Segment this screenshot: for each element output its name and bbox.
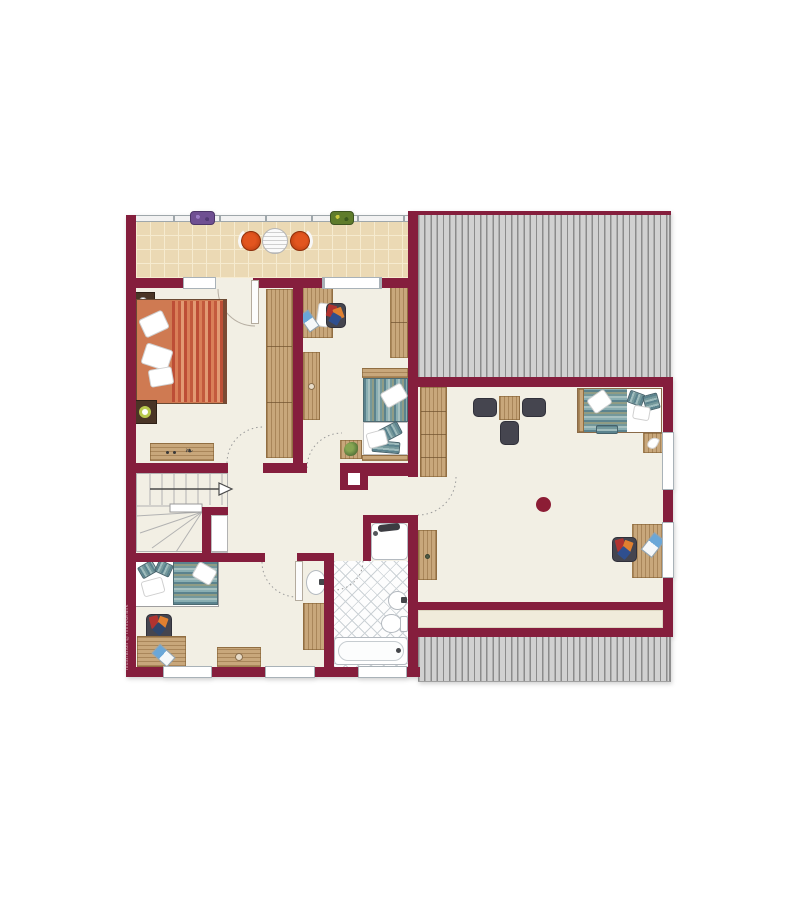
faucet-icon [401,597,407,603]
cushion [154,559,174,578]
toilet [381,614,402,633]
wall [263,463,307,473]
duvet [172,301,223,402]
flower-box-purple-icon [190,211,215,225]
dining-table [499,396,520,420]
wall [418,628,673,637]
chimney-core [348,473,360,485]
door-gap-floor [408,477,418,515]
single-bed-footboard [362,455,408,461]
bed [135,559,219,607]
wall [293,278,303,473]
window [183,277,216,289]
wardrobe-divider [391,322,407,323]
wardrobe-divider [267,402,292,403]
balcony-railing [126,215,412,222]
pillow [140,576,165,597]
wall [297,553,334,561]
knob-icon [235,653,243,661]
pillow [148,366,175,388]
dresser: ❧ [150,443,214,461]
wall [324,553,334,667]
wall [126,278,183,288]
roof-edge-line [408,211,671,215]
shelf-divider [421,411,446,412]
flower-box-green-icon [330,211,354,225]
wall [202,507,228,515]
single-bed-headboard [362,368,408,378]
bistro-table-icon [262,228,288,254]
wardrobe [266,289,293,458]
double-bed [136,299,227,404]
pillow [138,309,170,338]
floor-plan: ❧ [0,0,796,900]
roof-area-top [418,215,671,377]
wall [663,490,673,522]
table-lamp-icon [139,406,151,418]
bathtub-basin [338,641,404,661]
flue-icon [536,497,551,512]
knob-icon [425,554,430,559]
watermark: Illustration ©ImmoGrafik [124,608,133,670]
knob-icon [308,383,315,390]
knob-icon [166,451,169,454]
knob-icon [173,451,176,454]
wall [212,667,265,677]
balcony-door-leaf [251,280,259,324]
wall [408,377,673,387]
pillow [632,405,651,422]
bedroom-door-leaf [295,561,303,601]
cabinet [418,530,437,580]
window [265,666,315,678]
wall [408,515,418,677]
wardrobe-divider [267,346,292,347]
window [358,666,407,678]
wall [418,602,673,610]
bathtub [334,637,408,665]
chair [522,398,546,417]
wall [315,667,358,677]
wall [253,278,322,288]
decor-icon: ❧ [185,445,209,459]
daybed [577,388,662,433]
chair [500,421,519,445]
footboard [223,300,227,403]
wall [126,553,265,562]
roof-area-bottom [418,637,671,682]
window [662,432,674,490]
faucet-icon [396,648,401,653]
shower-knob-icon [373,531,378,536]
window [322,277,382,289]
window [662,522,674,578]
wall [407,667,420,677]
storage-strip [418,610,663,628]
dresser [303,352,320,420]
blanket-drape [596,425,618,434]
closet-niche [211,515,228,553]
cabinet [217,647,261,667]
wall [408,211,418,477]
bookshelf [420,387,447,477]
floor-plan-page: ❧ [0,0,796,900]
toilet-tank [400,616,408,632]
shelf-divider [421,457,446,458]
wall [363,515,418,523]
single-bed-mattress [363,422,408,455]
wall [382,278,418,288]
wardrobe [390,286,408,358]
chair [473,398,497,417]
window [163,666,212,678]
shelf-divider [421,434,446,435]
wall [126,463,228,473]
